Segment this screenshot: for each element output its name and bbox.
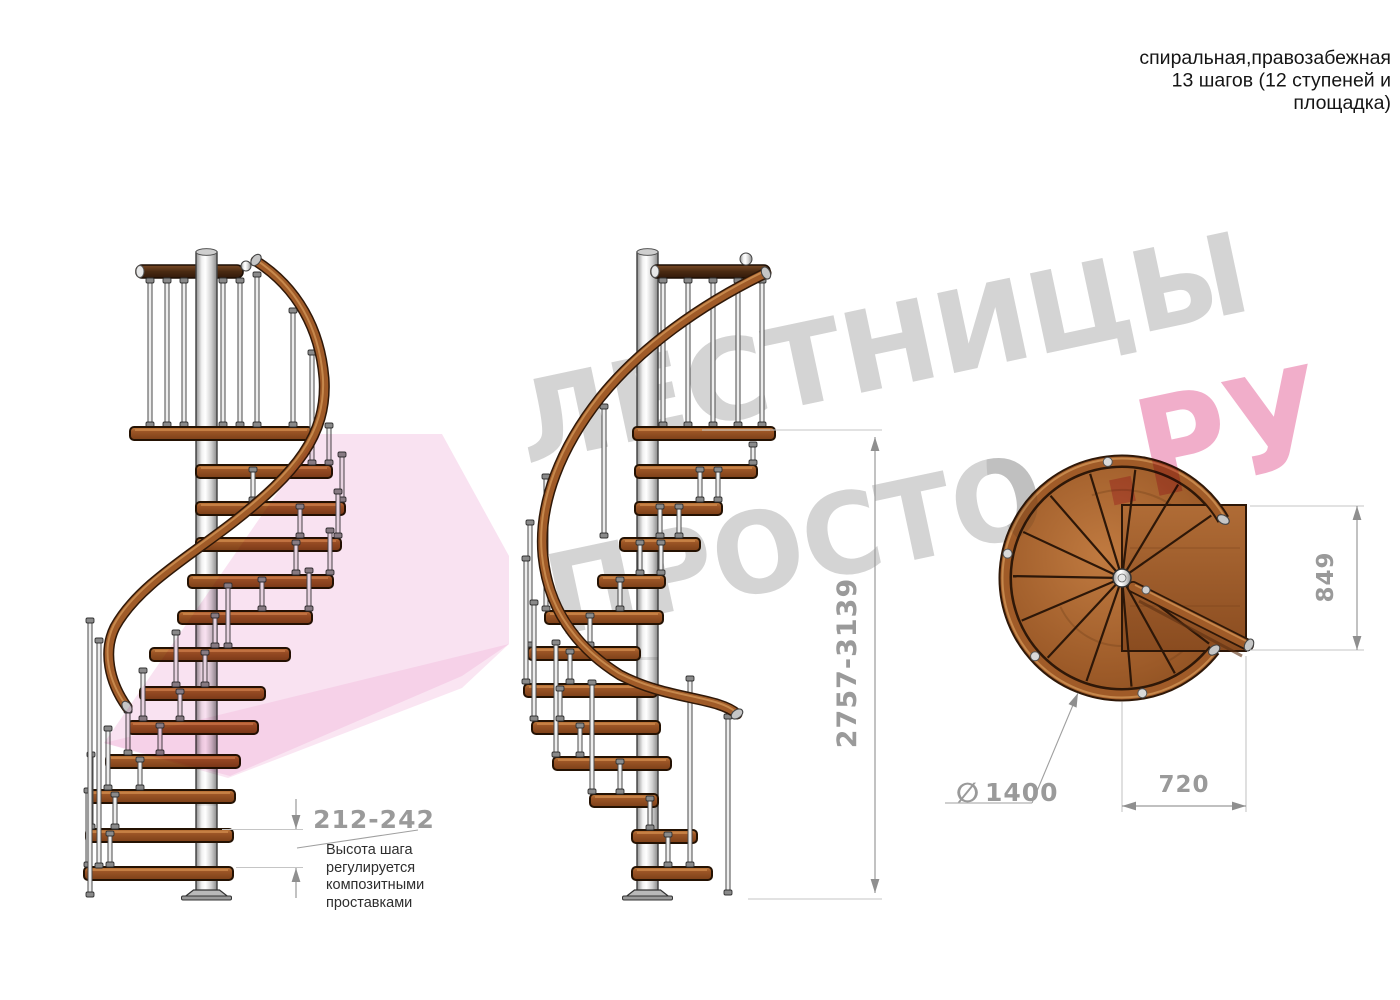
newel-ball-cap: [241, 261, 251, 271]
baluster: [221, 278, 225, 427]
baluster: [661, 278, 665, 427]
baluster-collar: [656, 504, 664, 509]
baluster-collar: [714, 467, 722, 472]
dimension-total-height: 2757-3139: [832, 578, 863, 749]
baluster-collar: [616, 789, 624, 794]
baluster-collar: [136, 785, 144, 790]
total-height-value: 2757-3139: [832, 578, 863, 749]
baluster-collar: [236, 278, 244, 283]
baluster-collar: [714, 497, 722, 502]
wooden-tread: [88, 790, 235, 803]
baluster-collar: [659, 278, 667, 283]
newel-ball-cap: [740, 253, 752, 265]
baluster-collar: [588, 680, 596, 685]
baluster-collar: [253, 272, 261, 277]
column-base-plate: [623, 896, 673, 900]
baluster-collar: [249, 467, 257, 472]
wooden-tread: [633, 427, 775, 440]
dimension-arrow: [1353, 506, 1362, 520]
baluster-collar: [146, 278, 154, 283]
baluster-collar: [136, 757, 144, 762]
baluster-top: [1003, 549, 1012, 558]
baluster-collar: [686, 676, 694, 681]
baluster: [255, 272, 259, 427]
baluster-collar: [686, 862, 694, 867]
baluster: [113, 792, 117, 829]
baluster-collar: [657, 540, 665, 545]
baluster-collar: [696, 497, 704, 502]
baluster-collar: [616, 577, 624, 582]
baluster: [726, 714, 730, 895]
baluster: [148, 278, 152, 427]
baluster-collar: [530, 716, 538, 721]
baluster-collar: [86, 892, 94, 897]
step-height-note-line1: Высота шага: [326, 842, 413, 858]
baluster-collar: [616, 759, 624, 764]
baluster-collar: [556, 716, 564, 721]
baluster-collar: [586, 613, 594, 618]
baluster-collar: [576, 752, 584, 757]
column-hub-center: [1118, 574, 1126, 582]
baluster-collar: [656, 533, 664, 538]
baluster: [88, 618, 92, 897]
baluster-collar: [646, 796, 654, 801]
baluster: [688, 676, 692, 867]
baluster: [590, 680, 594, 794]
staircase-technical-drawing: ЛЕСТНИЦЫ ПРОСТО ПРОСТО .РУ 212-242 Высот…: [0, 0, 1400, 1000]
baluster-collar: [675, 504, 683, 509]
dimension-arrow: [1353, 636, 1362, 650]
rail-mount-bolt: [1142, 586, 1150, 594]
baluster-collar: [664, 862, 672, 867]
title-line1: спиральная,правозабежная: [1139, 47, 1391, 69]
baluster-collar: [684, 278, 692, 283]
wooden-tread: [532, 721, 660, 734]
step-height-value: 212-242: [313, 805, 435, 834]
baluster: [736, 278, 740, 427]
baluster-collar: [172, 630, 180, 635]
baluster-collar: [289, 308, 297, 313]
step-height-note-line3: композитными: [326, 877, 424, 893]
baluster-collar: [552, 640, 560, 645]
baluster-collar: [111, 824, 119, 829]
wooden-tread: [632, 867, 712, 880]
baluster-collar: [657, 570, 665, 575]
baluster-collar: [542, 606, 550, 611]
baluster-collar: [95, 638, 103, 643]
column-top-cap: [637, 249, 658, 256]
baluster-collar: [86, 618, 94, 623]
baluster-collar: [636, 540, 644, 545]
drawing-title: спиральная,правозабежная 13 шагов (12 ст…: [1139, 47, 1391, 114]
baluster-collar: [163, 278, 171, 283]
baluster-collar: [749, 442, 757, 447]
pink-ribbon-watermark: [104, 434, 509, 778]
baluster: [602, 404, 606, 538]
baluster: [532, 600, 536, 721]
platform-depth-value: 849: [1313, 551, 1339, 602]
baluster-collar: [139, 668, 147, 673]
baluster-collar: [675, 533, 683, 538]
dimension-diameter: ∅ 1400: [956, 778, 1059, 809]
baluster-collar: [104, 785, 112, 790]
baluster-collar: [530, 600, 538, 605]
baluster: [524, 556, 528, 684]
baluster-collar: [616, 606, 624, 611]
watermark-suffix-ru: .РУ: [1076, 337, 1339, 539]
step-height-note-line4: проставками: [326, 895, 412, 911]
baluster-collar: [749, 460, 757, 465]
baluster: [238, 278, 242, 427]
title-line2: 13 шагов (12 ступеней и: [1172, 70, 1391, 92]
baluster: [97, 638, 101, 868]
baluster-collar: [180, 278, 188, 283]
dimension-arrow: [871, 437, 880, 451]
platform-width-value: 720: [1158, 772, 1209, 798]
baluster-top: [1031, 652, 1040, 661]
title-line3: площадка): [1293, 92, 1391, 114]
baluster-collar: [253, 422, 261, 427]
baluster: [760, 278, 764, 427]
dimension-arrow: [292, 868, 301, 882]
baluster-collar: [104, 726, 112, 731]
dimension-arrow: [292, 815, 301, 829]
column-top-cap: [196, 249, 217, 256]
baluster-collar: [566, 679, 574, 684]
baluster-collar: [588, 789, 596, 794]
dimension-arrow: [1232, 802, 1246, 811]
baluster-collar: [95, 863, 103, 868]
baluster-collar: [219, 278, 227, 283]
baluster: [686, 278, 690, 427]
wooden-tread: [84, 867, 233, 880]
baluster-collar: [600, 533, 608, 538]
baluster-collar: [576, 723, 584, 728]
baluster-collar: [106, 862, 114, 867]
baluster-collar: [696, 467, 704, 472]
baluster-collar: [522, 556, 530, 561]
handrail-end-cap: [136, 266, 144, 278]
dimension-platform-width: 720: [1158, 772, 1209, 798]
baluster: [528, 520, 532, 647]
baluster-collar: [646, 825, 654, 830]
baluster-collar: [522, 679, 530, 684]
baluster-collar: [325, 423, 333, 428]
baluster-collar: [724, 890, 732, 895]
baluster-collar: [289, 422, 297, 427]
baluster-collar: [111, 792, 119, 797]
wooden-tread: [130, 427, 312, 440]
diameter-symbol: ∅: [956, 778, 980, 809]
baluster-collar: [709, 278, 717, 283]
step-height-note-line2: регулируется: [326, 860, 415, 876]
diameter-value: 1400: [985, 778, 1059, 807]
baluster-collar: [566, 649, 574, 654]
platform-handrail: [136, 265, 243, 278]
wooden-tread: [598, 575, 665, 588]
column-base-plate: [182, 896, 232, 900]
baluster: [291, 308, 295, 427]
wooden-tread: [553, 757, 671, 770]
dimension-arrow: [871, 879, 880, 893]
baluster: [165, 278, 169, 427]
baluster-top: [1138, 689, 1147, 698]
baluster-collar: [664, 832, 672, 837]
dimension-platform-depth: 849: [1313, 551, 1339, 602]
baluster-collar: [124, 750, 132, 755]
baluster: [182, 278, 186, 427]
dimension-arrow: [1122, 802, 1136, 811]
dimension-step-height: 212-242 Высота шага регулируется компози…: [313, 805, 435, 911]
handrail-end-cap: [651, 266, 659, 278]
baluster: [554, 640, 558, 757]
baluster-collar: [556, 686, 564, 691]
baluster-collar: [106, 831, 114, 836]
baluster-collar: [636, 570, 644, 575]
baluster-collar: [552, 752, 560, 757]
baluster-collar: [526, 520, 534, 525]
